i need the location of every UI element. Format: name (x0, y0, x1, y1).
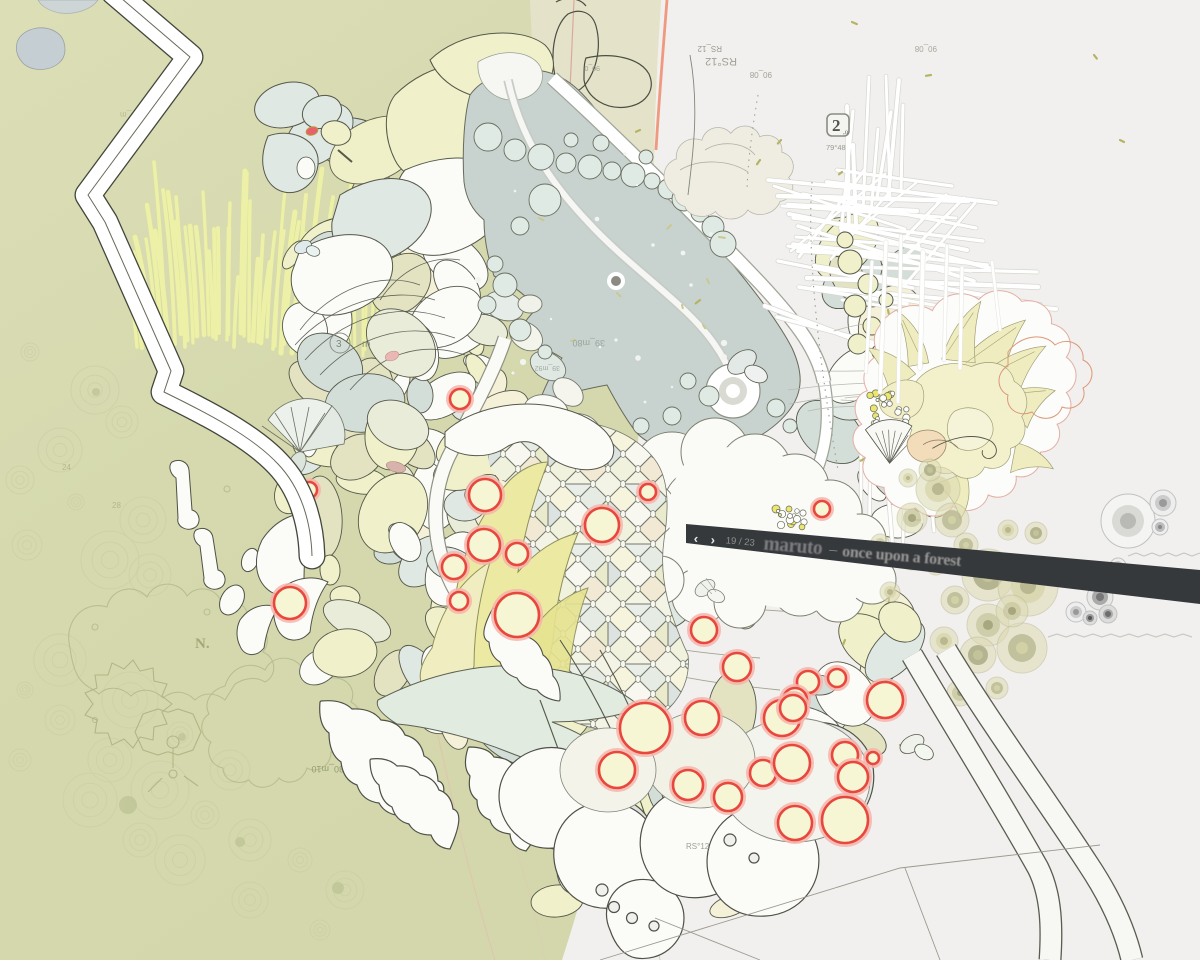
svg-text:28: 28 (112, 501, 121, 510)
svg-text:3: 3 (336, 339, 342, 350)
svg-text:RS_12: RS_12 (697, 44, 722, 53)
svg-text:90_08: 90_08 (914, 44, 937, 53)
svg-text:90_08: 90_08 (749, 70, 772, 79)
svg-text:,o: ,o (843, 128, 849, 136)
svg-text:79°48: 79°48 (826, 143, 846, 152)
svg-text:24: 24 (62, 463, 71, 472)
svg-text:39_m80: 39_m80 (572, 338, 605, 348)
svg-text:2: 2 (832, 116, 841, 135)
svg-text:RS°12: RS°12 (686, 842, 710, 851)
svg-text:N.: N. (195, 636, 210, 652)
svg-text:RS°12: RS°12 (705, 55, 737, 67)
svg-text:30_m10: 30_m10 (311, 764, 344, 774)
svg-text:m: m (362, 339, 370, 350)
svg-text:39_m92: 39_m92 (535, 364, 560, 371)
svg-text:90_0: 90_0 (584, 64, 600, 71)
